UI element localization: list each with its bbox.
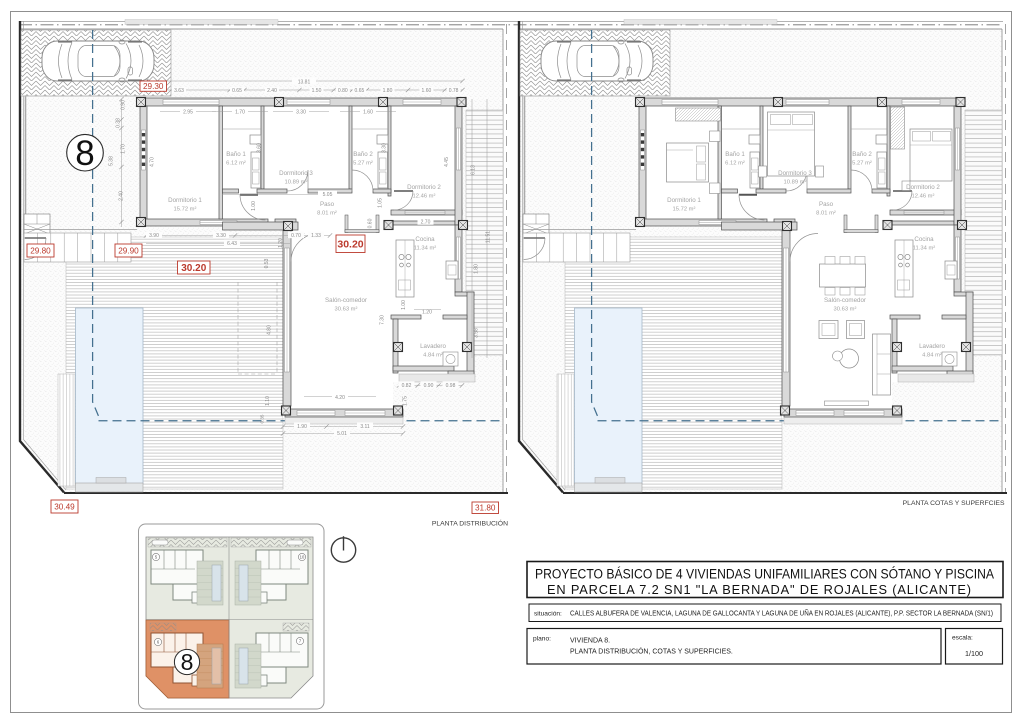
svg-text:1.10: 1.10: [265, 396, 271, 406]
svg-text:0.80: 0.80: [338, 88, 348, 94]
svg-text:Dormitorio 1: Dormitorio 1: [667, 197, 701, 204]
svg-text:1.20: 1.20: [422, 309, 432, 315]
svg-text:1.70: 1.70: [235, 110, 245, 116]
svg-text:5.38: 5.38: [109, 156, 115, 166]
svg-text:6.13: 6.13: [471, 165, 477, 175]
svg-text:1.90: 1.90: [297, 424, 307, 430]
svg-text:1/100: 1/100: [965, 649, 983, 658]
svg-text:0.82: 0.82: [402, 383, 412, 389]
svg-text:Baño 2: Baño 2: [353, 151, 373, 158]
svg-text:15.72 m²: 15.72 m²: [174, 207, 197, 213]
svg-text:Salón-comedor: Salón-comedor: [824, 297, 866, 304]
svg-text:0.60: 0.60: [368, 218, 374, 228]
svg-text:6.43: 6.43: [227, 241, 237, 247]
svg-text:30.49: 30.49: [54, 502, 75, 511]
svg-text:8.01 m²: 8.01 m²: [317, 211, 337, 217]
svg-text:Baño 2: Baño 2: [852, 151, 872, 158]
svg-text:12.46 m²: 12.46 m²: [912, 194, 935, 200]
svg-text:1.80: 1.80: [474, 264, 480, 274]
svg-text:plano:: plano:: [533, 636, 551, 643]
svg-text:2.40: 2.40: [267, 88, 277, 94]
svg-text:1.00: 1.00: [401, 300, 407, 310]
svg-text:1.60: 1.60: [363, 110, 373, 116]
svg-text:Baño 1: Baño 1: [226, 151, 246, 158]
svg-text:0.35: 0.35: [260, 414, 265, 423]
svg-text:3.30: 3.30: [296, 110, 306, 116]
svg-text:12.46 m²: 12.46 m²: [413, 194, 436, 200]
svg-text:8: 8: [181, 649, 194, 675]
svg-text:VIVIENDA 8.: VIVIENDA 8.: [570, 638, 610, 645]
svg-text:PLANTA DISTRIBUCIÓN, COTAS Y S: PLANTA DISTRIBUCIÓN, COTAS Y SUPERFICIES…: [570, 647, 733, 656]
svg-text:1.05: 1.05: [378, 198, 384, 208]
svg-text:5.05: 5.05: [323, 192, 333, 198]
svg-text:0.65: 0.65: [232, 88, 242, 94]
svg-text:Dormitorio 1: Dormitorio 1: [168, 197, 202, 204]
svg-text:PROYECTO BÁSICO DE 4 VIVIENDAS: PROYECTO BÁSICO DE 4 VIVIENDAS UNIFAMILI…: [535, 566, 994, 583]
svg-text:Dormitorio 3: Dormitorio 3: [778, 170, 812, 177]
svg-text:1.70: 1.70: [121, 144, 127, 154]
svg-text:0.98: 0.98: [446, 383, 456, 389]
svg-text:4.45: 4.45: [444, 157, 450, 167]
svg-text:11.34 m²: 11.34 m²: [414, 246, 437, 252]
svg-text:CALLES ALBUFERA DE VALENCIA, L: CALLES ALBUFERA DE VALENCIA, LAGUNA DE G…: [570, 609, 993, 618]
svg-text:1.80: 1.80: [383, 88, 393, 94]
svg-text:30.20: 30.20: [181, 263, 206, 274]
svg-text:3.30: 3.30: [216, 233, 226, 239]
svg-text:0.70: 0.70: [291, 233, 301, 239]
svg-text:Cocina: Cocina: [914, 236, 934, 243]
svg-text:8.01 m²: 8.01 m²: [816, 211, 836, 217]
svg-text:Lavadero: Lavadero: [919, 343, 945, 350]
svg-text:3.60: 3.60: [257, 143, 263, 153]
svg-text:13.81: 13.81: [298, 80, 311, 86]
svg-text:1.20: 1.20: [278, 238, 284, 248]
svg-text:escala:: escala:: [952, 635, 973, 642]
svg-text:EN PARCELA 7.2 SN1 "LA BERNADA: EN PARCELA 7.2 SN1 "LA BERNADA" DE ROJAL…: [547, 582, 971, 597]
svg-text:29.30: 29.30: [143, 82, 164, 91]
svg-text:1.33: 1.33: [311, 233, 321, 239]
svg-text:1.00: 1.00: [251, 201, 257, 211]
svg-text:10.89 m²: 10.89 m²: [784, 180, 807, 186]
svg-text:2.40: 2.40: [119, 191, 125, 201]
svg-text:6.12 m²: 6.12 m²: [226, 161, 246, 167]
svg-text:Dormitorio 2: Dormitorio 2: [407, 184, 441, 191]
svg-text:4.80: 4.80: [267, 325, 273, 335]
svg-text:2.95: 2.95: [183, 110, 193, 116]
svg-text:Dormitorio 2: Dormitorio 2: [906, 184, 940, 191]
svg-text:30.63 m²: 30.63 m²: [834, 307, 857, 313]
svg-text:4.20: 4.20: [335, 395, 345, 401]
svg-text:3.90: 3.90: [149, 233, 159, 239]
svg-text:4.70: 4.70: [150, 157, 156, 167]
svg-text:5.27 m²: 5.27 m²: [353, 161, 373, 167]
svg-text:11.51: 11.51: [486, 231, 492, 243]
svg-text:3.11: 3.11: [360, 424, 370, 430]
svg-text:5.01: 5.01: [337, 431, 347, 437]
svg-text:0.90: 0.90: [424, 383, 434, 389]
svg-text:Baño 1: Baño 1: [725, 151, 745, 158]
svg-text:10.89 m²: 10.89 m²: [285, 180, 308, 186]
svg-text:0.53: 0.53: [264, 258, 270, 268]
svg-text:4.84 m²: 4.84 m²: [922, 353, 942, 359]
svg-text:3.30: 3.30: [382, 143, 388, 153]
svg-text:PLANTA DISTRIBUCIÓN: PLANTA DISTRIBUCIÓN: [432, 519, 508, 528]
svg-text:Lavadero: Lavadero: [420, 343, 446, 350]
svg-text:Salón-comedor: Salón-comedor: [325, 297, 367, 304]
svg-text:15.72 m²: 15.72 m²: [673, 207, 696, 213]
svg-text:1.75: 1.75: [403, 396, 409, 406]
svg-text:Paso: Paso: [819, 201, 834, 208]
svg-text:11.34 m²: 11.34 m²: [913, 246, 936, 252]
svg-text:Paso: Paso: [320, 201, 335, 208]
svg-text:situación:: situación:: [534, 611, 562, 618]
svg-text:Dormitorio 3: Dormitorio 3: [279, 170, 313, 177]
svg-text:30.20: 30.20: [337, 239, 363, 251]
svg-text:31.80: 31.80: [475, 504, 496, 513]
svg-text:1.50: 1.50: [312, 88, 322, 94]
svg-text:4.84 m²: 4.84 m²: [423, 353, 443, 359]
svg-text:1.60: 1.60: [422, 88, 432, 94]
svg-text:8: 8: [75, 134, 94, 173]
svg-text:29.90: 29.90: [118, 246, 139, 255]
svg-text:29.80: 29.80: [30, 246, 51, 255]
svg-text:0.78: 0.78: [449, 88, 459, 94]
svg-text:3.58: 3.58: [474, 328, 480, 338]
svg-text:6.12 m²: 6.12 m²: [725, 161, 745, 167]
svg-text:0.90: 0.90: [121, 100, 127, 110]
svg-text:7.30: 7.30: [380, 315, 386, 325]
svg-text:PLANTA COTAS Y SUPERFCIES: PLANTA COTAS Y SUPERFCIES: [903, 500, 1005, 507]
svg-text:0.65: 0.65: [355, 88, 365, 94]
svg-text:2.70: 2.70: [421, 219, 431, 225]
svg-text:3.63: 3.63: [174, 88, 184, 94]
svg-text:30.63 m²: 30.63 m²: [335, 307, 358, 313]
svg-text:5.27 m²: 5.27 m²: [852, 161, 872, 167]
svg-text:10: 10: [300, 555, 305, 560]
svg-text:0.38: 0.38: [116, 118, 122, 128]
svg-text:Cocina: Cocina: [415, 236, 435, 243]
